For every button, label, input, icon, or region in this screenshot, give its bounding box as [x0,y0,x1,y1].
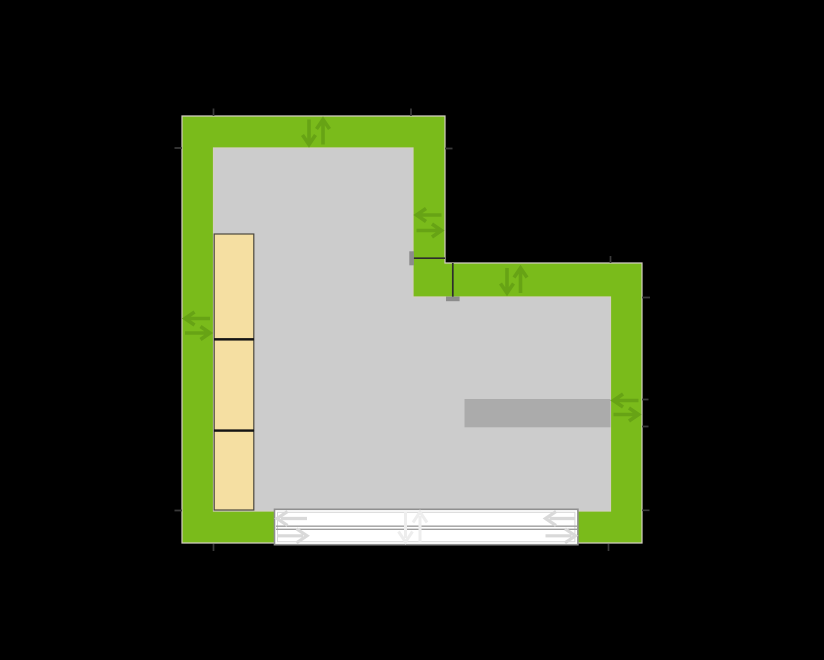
floor-plan-stage [0,0,824,660]
cabinet-2[interactable] [214,340,254,431]
wall-cabinets [214,234,254,510]
sliding-door[interactable] [275,509,578,544]
cabinet-3[interactable] [214,431,254,510]
cabinet-1[interactable] [214,234,254,339]
joint-cap-vertical-wall [409,251,414,265]
sliding-door-body[interactable] [275,509,578,544]
floor-plan-canvas [0,0,824,660]
sideboard[interactable] [465,399,611,427]
joint-cap-horizontal-wall [446,297,460,302]
